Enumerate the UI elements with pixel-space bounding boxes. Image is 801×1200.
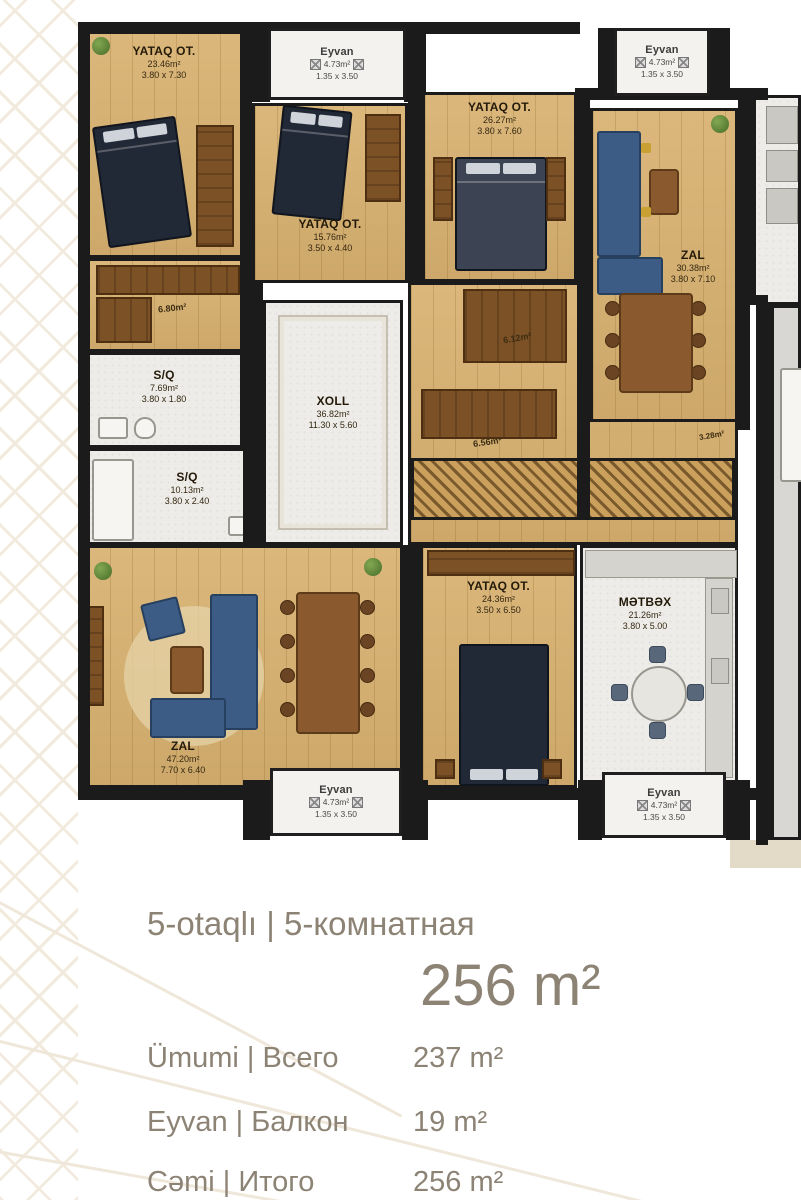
stairs-icon — [780, 368, 801, 482]
window-marker-icon — [635, 57, 646, 68]
chair-icon — [649, 646, 666, 663]
summary-row-value: 237 m² — [413, 1042, 503, 1075]
kitchen-strip — [750, 95, 801, 305]
room-name: YATAQ OT. — [88, 45, 240, 59]
chair-icon — [360, 600, 375, 615]
plant-icon — [711, 115, 729, 133]
wall — [756, 295, 768, 845]
wall — [78, 22, 90, 800]
dining-table-icon — [619, 293, 693, 393]
summary-row-value: 19 m² — [413, 1106, 487, 1139]
wardrobe-run-icon — [411, 458, 735, 520]
room-name: YATAQ OT. — [255, 218, 405, 232]
room-area: 7.69m² — [88, 383, 240, 395]
room-bathroom-2: S/Q 10.13m² 3.80 x 2.40 — [85, 448, 263, 545]
room-dims: 3.50 x 4.40 — [255, 243, 405, 255]
summary-row-label: Cəmi | Итого — [147, 1166, 314, 1199]
room-area: 15.76m² — [255, 232, 405, 244]
room-name: XOLL — [266, 395, 400, 409]
room-dims: 3.80 x 1.80 — [88, 394, 240, 406]
window-marker-icon — [353, 59, 364, 70]
chair-icon — [605, 365, 620, 380]
window-marker-icon — [680, 800, 691, 811]
room-dims: 1.35 x 3.50 — [315, 809, 357, 820]
cabinet-icon — [463, 289, 567, 363]
wall — [408, 102, 422, 282]
room-living-bottom: ZAL 47.20m² 7.70 x 6.40 — [85, 545, 403, 788]
toilet-icon — [134, 417, 156, 439]
room-area: 36.82m² — [266, 409, 400, 421]
chair-icon — [605, 333, 620, 348]
chair-icon — [691, 365, 706, 380]
wall — [738, 100, 750, 430]
room-name: MƏTBƏX — [583, 596, 707, 610]
oven-icon — [766, 150, 798, 182]
balcony-top-center: Eyvan 4.73m² 1.35 x 3.50 — [268, 28, 406, 100]
wall — [243, 255, 263, 545]
wall — [577, 92, 590, 517]
plant-icon — [94, 562, 112, 580]
bed-icon — [455, 157, 547, 271]
room-dims: 1.35 x 3.50 — [316, 71, 358, 82]
window-marker-icon — [310, 59, 321, 70]
nightstand-icon — [542, 759, 562, 779]
wardrobe-icon — [427, 550, 575, 576]
room-area: 4.73m² — [649, 57, 675, 68]
window-marker-icon — [637, 800, 648, 811]
bed-icon — [271, 105, 352, 222]
bathtub-icon — [92, 459, 134, 541]
cabinet-icon — [421, 389, 557, 439]
wardrobe-icon — [196, 125, 234, 247]
coffee-table-icon — [649, 169, 679, 215]
room-area: 10.13m² — [132, 485, 242, 497]
sink-icon — [711, 658, 729, 684]
room-dims: 3.80 x 7.60 — [425, 126, 574, 138]
room-area: 26.27m² — [425, 115, 574, 127]
room-hall: XOLL 36.82m² 11.30 x 5.60 — [263, 300, 403, 545]
nightstand-icon — [435, 759, 455, 779]
cushion-icon — [641, 207, 651, 217]
room-dims: 3.80 x 7.10 — [649, 274, 737, 286]
room-dims: 3.50 x 6.50 — [423, 605, 574, 617]
kitchen-table-icon — [631, 666, 687, 722]
decorative-line — [0, 1140, 801, 1200]
chair-icon — [649, 722, 666, 739]
room-name: ZAL — [118, 740, 248, 754]
balcony-top-right: Eyvan 4.73m² 1.35 x 3.50 — [614, 28, 710, 96]
sink-icon — [98, 417, 128, 439]
room-area: 24.36m² — [423, 594, 574, 606]
total-area-headline: 256 m² — [420, 952, 601, 1019]
room-area: 23.46m² — [88, 59, 240, 71]
chair-icon — [280, 702, 295, 717]
bed-icon — [92, 116, 192, 249]
sofa-icon — [150, 698, 226, 738]
room-dims: 1.35 x 3.50 — [643, 812, 685, 823]
tv-console-icon — [88, 606, 104, 706]
room-name: Eyvan — [647, 787, 680, 800]
room-name: Eyvan — [645, 44, 678, 57]
wall — [598, 28, 614, 100]
plant-icon — [92, 37, 110, 55]
room-name: YATAQ OT. — [425, 101, 574, 115]
room-kitchen: MƏTBƏX 21.26m² 3.80 x 5.00 — [580, 545, 738, 788]
nightstand-icon — [546, 157, 566, 221]
apartment-type-title: 5-otaqlı | 5-комнатная — [147, 905, 475, 943]
window-marker-icon — [309, 797, 320, 808]
bed-icon — [459, 644, 549, 786]
wardrobe-icon — [365, 114, 401, 202]
cabinet-icon — [96, 297, 152, 343]
summary-row-label: Eyvan | Балкон — [147, 1106, 349, 1139]
wall — [404, 22, 426, 102]
corridor-area-label: 6.80m² — [158, 302, 187, 315]
room-dims: 3.80 x 5.00 — [583, 621, 707, 633]
chair-icon — [280, 668, 295, 683]
wall — [243, 22, 270, 102]
chair-icon — [611, 684, 628, 701]
room-area: 30.38m² — [649, 263, 737, 275]
wall — [402, 780, 428, 840]
sofa-icon — [597, 131, 641, 257]
room-name: YATAQ OT. — [423, 580, 574, 594]
dining-table-icon — [296, 592, 360, 734]
fridge-icon — [766, 106, 798, 144]
wall — [403, 545, 420, 788]
balcony-bottom-left: Eyvan 4.73m² 1.35 x 3.50 — [270, 768, 402, 836]
room-area: 21.26m² — [583, 610, 707, 622]
room-dims: 1.35 x 3.50 — [641, 69, 683, 80]
room-dims: 3.80 x 7.30 — [88, 70, 240, 82]
chair-icon — [360, 668, 375, 683]
wall — [726, 780, 750, 840]
room-name: Eyvan — [320, 46, 353, 59]
corridor-left: 6.80m² — [85, 258, 243, 352]
plant-icon — [364, 558, 382, 576]
chair-icon — [280, 634, 295, 649]
nightstand-icon — [433, 157, 453, 221]
chair-icon — [360, 702, 375, 717]
coffee-table-icon — [170, 646, 204, 694]
neighbor-unit — [768, 305, 801, 840]
wall — [578, 780, 602, 840]
summary-row-value: 256 m² — [413, 1166, 503, 1199]
window-marker-icon — [352, 797, 363, 808]
chair-icon — [691, 333, 706, 348]
room-area: 4.73m² — [651, 800, 677, 811]
wall — [708, 28, 730, 100]
cushion-icon — [641, 143, 651, 153]
room-dims: 3.80 x 2.40 — [132, 496, 242, 508]
room-bedroom-bottom: YATAQ OT. 24.36m² 3.50 x 6.50 — [420, 545, 577, 788]
room-dims: 11.30 x 5.60 — [266, 420, 400, 432]
brochure-page: 6.12m² 6.56m² 3.28m² YATAQ OT. 23.46m² 3… — [0, 0, 801, 1200]
room-dims: 7.70 x 6.40 — [118, 765, 248, 777]
room-bedroom-top-left: YATAQ OT. 23.46m² 3.80 x 7.30 — [85, 30, 243, 258]
room-area: 4.73m² — [323, 797, 349, 808]
wall — [243, 100, 252, 260]
room-name: ZAL — [649, 249, 737, 263]
room-area: 47.20m² — [118, 754, 248, 766]
cabinet-icon — [96, 265, 240, 295]
chair-icon — [605, 301, 620, 316]
cabinet-icon — [766, 188, 798, 224]
chair-icon — [687, 684, 704, 701]
summary-row-label: Ümumi | Всего — [147, 1042, 339, 1075]
room-name: S/Q — [88, 369, 240, 383]
room-bedroom-top-right: YATAQ OT. 26.27m² 3.80 x 7.60 — [422, 92, 577, 282]
decorative-chevron-strip — [0, 0, 78, 1200]
kitchen-counter-icon — [585, 550, 737, 578]
room-bathroom-1: S/Q 7.69m² 3.80 x 1.80 — [85, 352, 243, 448]
room-name: S/Q — [132, 471, 242, 485]
room-area: 4.73m² — [324, 59, 350, 70]
niche-area-label: 3.28m² — [698, 429, 725, 442]
chair-icon — [691, 301, 706, 316]
room-living-right: ZAL 30.38m² 3.80 x 7.10 — [590, 108, 738, 422]
balcony-bottom-right: Eyvan 4.73m² 1.35 x 3.50 — [602, 772, 726, 838]
window-marker-icon — [678, 57, 689, 68]
room-bedroom-top-center: YATAQ OT. 15.76m² 3.50 x 4.40 — [252, 103, 408, 283]
room-name: Eyvan — [319, 784, 352, 797]
wall — [243, 780, 270, 840]
stove-icon — [711, 588, 729, 614]
chair-icon — [280, 600, 295, 615]
chair-icon — [360, 634, 375, 649]
